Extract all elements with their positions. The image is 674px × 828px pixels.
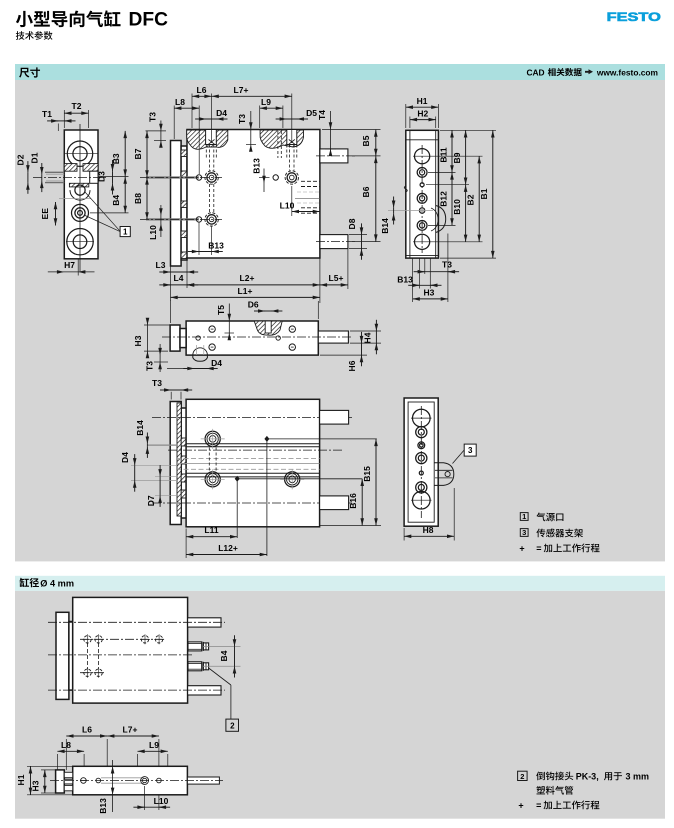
svg-text:B9: B9 bbox=[452, 152, 462, 163]
svg-text:L8: L8 bbox=[61, 740, 71, 750]
svg-text:L8: L8 bbox=[175, 97, 185, 107]
svg-text:FESTO: FESTO bbox=[607, 10, 661, 24]
svg-text:B12: B12 bbox=[439, 191, 449, 207]
svg-text:D6: D6 bbox=[248, 300, 259, 310]
svg-text:www.festo.com: www.festo.com bbox=[596, 68, 658, 78]
svg-text:T3: T3 bbox=[148, 112, 158, 122]
svg-text:L6: L6 bbox=[82, 725, 92, 735]
svg-text:H3: H3 bbox=[31, 780, 41, 791]
svg-text:T3: T3 bbox=[442, 260, 452, 270]
svg-text:B2: B2 bbox=[466, 194, 476, 205]
svg-text:H8: H8 bbox=[423, 525, 434, 535]
svg-text:3: 3 bbox=[468, 446, 473, 455]
svg-text:L1+: L1+ bbox=[238, 286, 253, 296]
svg-text:B1: B1 bbox=[479, 188, 489, 199]
svg-text:1: 1 bbox=[123, 228, 128, 237]
svg-text:H7: H7 bbox=[64, 260, 75, 270]
svg-text:1: 1 bbox=[522, 512, 526, 521]
svg-text:T3: T3 bbox=[145, 361, 155, 371]
svg-text:T5: T5 bbox=[216, 305, 226, 315]
svg-text:L9: L9 bbox=[149, 740, 159, 750]
svg-text:L12+: L12+ bbox=[218, 543, 238, 553]
svg-text:T2: T2 bbox=[72, 101, 82, 111]
svg-text:H3: H3 bbox=[423, 288, 434, 298]
svg-text:+: + bbox=[518, 801, 523, 811]
svg-text:L10: L10 bbox=[280, 201, 295, 211]
svg-text:D4: D4 bbox=[120, 452, 130, 463]
svg-text:B13: B13 bbox=[252, 158, 262, 174]
svg-text:B4: B4 bbox=[219, 650, 229, 661]
svg-text:T3: T3 bbox=[152, 378, 162, 388]
svg-text:=: = bbox=[536, 801, 541, 811]
svg-text:D4: D4 bbox=[211, 358, 222, 368]
svg-text:B14: B14 bbox=[135, 420, 145, 436]
svg-text:L10: L10 bbox=[154, 796, 169, 806]
svg-text:=: = bbox=[536, 544, 541, 554]
svg-text:H3: H3 bbox=[133, 335, 143, 346]
svg-text:Ø 4 mm: Ø 4 mm bbox=[40, 578, 74, 588]
svg-text:L2+: L2+ bbox=[240, 273, 255, 283]
svg-text:B4: B4 bbox=[111, 195, 121, 206]
svg-text:H1: H1 bbox=[417, 96, 428, 106]
svg-text:B6: B6 bbox=[361, 186, 371, 197]
svg-text:B14: B14 bbox=[380, 218, 390, 234]
svg-text:T1: T1 bbox=[42, 109, 52, 119]
svg-text:DFC: DFC bbox=[129, 10, 169, 31]
svg-text:L3: L3 bbox=[156, 260, 166, 270]
svg-text:L10: L10 bbox=[148, 225, 158, 240]
svg-text:H2: H2 bbox=[417, 108, 428, 118]
svg-text:B13: B13 bbox=[208, 241, 224, 251]
svg-text:L7+: L7+ bbox=[123, 725, 138, 735]
svg-text:3: 3 bbox=[522, 528, 526, 537]
svg-text:D7: D7 bbox=[146, 495, 156, 506]
svg-text:B16: B16 bbox=[348, 493, 358, 509]
svg-text:D2: D2 bbox=[16, 154, 26, 165]
svg-text:3 mm: 3 mm bbox=[626, 772, 650, 782]
svg-text:CAD: CAD bbox=[526, 67, 544, 77]
svg-text:2: 2 bbox=[230, 722, 235, 731]
svg-text:PK-3,: PK-3, bbox=[576, 772, 599, 782]
svg-text:H4: H4 bbox=[363, 332, 373, 343]
svg-text:EE: EE bbox=[40, 208, 50, 220]
svg-text:L9: L9 bbox=[261, 97, 271, 107]
svg-text:B13: B13 bbox=[397, 275, 413, 285]
svg-text:L7+: L7+ bbox=[234, 85, 249, 95]
svg-text:B8: B8 bbox=[133, 193, 143, 204]
svg-text:L6: L6 bbox=[197, 85, 207, 95]
svg-text:D3: D3 bbox=[97, 171, 107, 182]
svg-text:B13: B13 bbox=[98, 798, 108, 814]
svg-text:T4: T4 bbox=[317, 110, 327, 120]
svg-text:H1: H1 bbox=[16, 774, 26, 785]
svg-text:B10: B10 bbox=[452, 199, 462, 215]
svg-text:D5: D5 bbox=[306, 108, 317, 118]
svg-text:B11: B11 bbox=[439, 147, 449, 162]
svg-text:D4: D4 bbox=[216, 108, 227, 118]
svg-text:B15: B15 bbox=[362, 466, 372, 482]
svg-text:B5: B5 bbox=[361, 135, 371, 146]
svg-text:+: + bbox=[519, 544, 524, 554]
svg-text:B7: B7 bbox=[133, 148, 143, 159]
svg-text:H6: H6 bbox=[347, 360, 357, 371]
svg-text:L5+: L5+ bbox=[329, 273, 344, 283]
svg-text:D8: D8 bbox=[347, 218, 357, 229]
svg-text:L4: L4 bbox=[174, 273, 184, 283]
svg-text:2: 2 bbox=[520, 772, 524, 781]
svg-text:L11: L11 bbox=[204, 525, 218, 535]
svg-text:T3: T3 bbox=[237, 114, 247, 124]
svg-text:D1: D1 bbox=[30, 152, 40, 163]
